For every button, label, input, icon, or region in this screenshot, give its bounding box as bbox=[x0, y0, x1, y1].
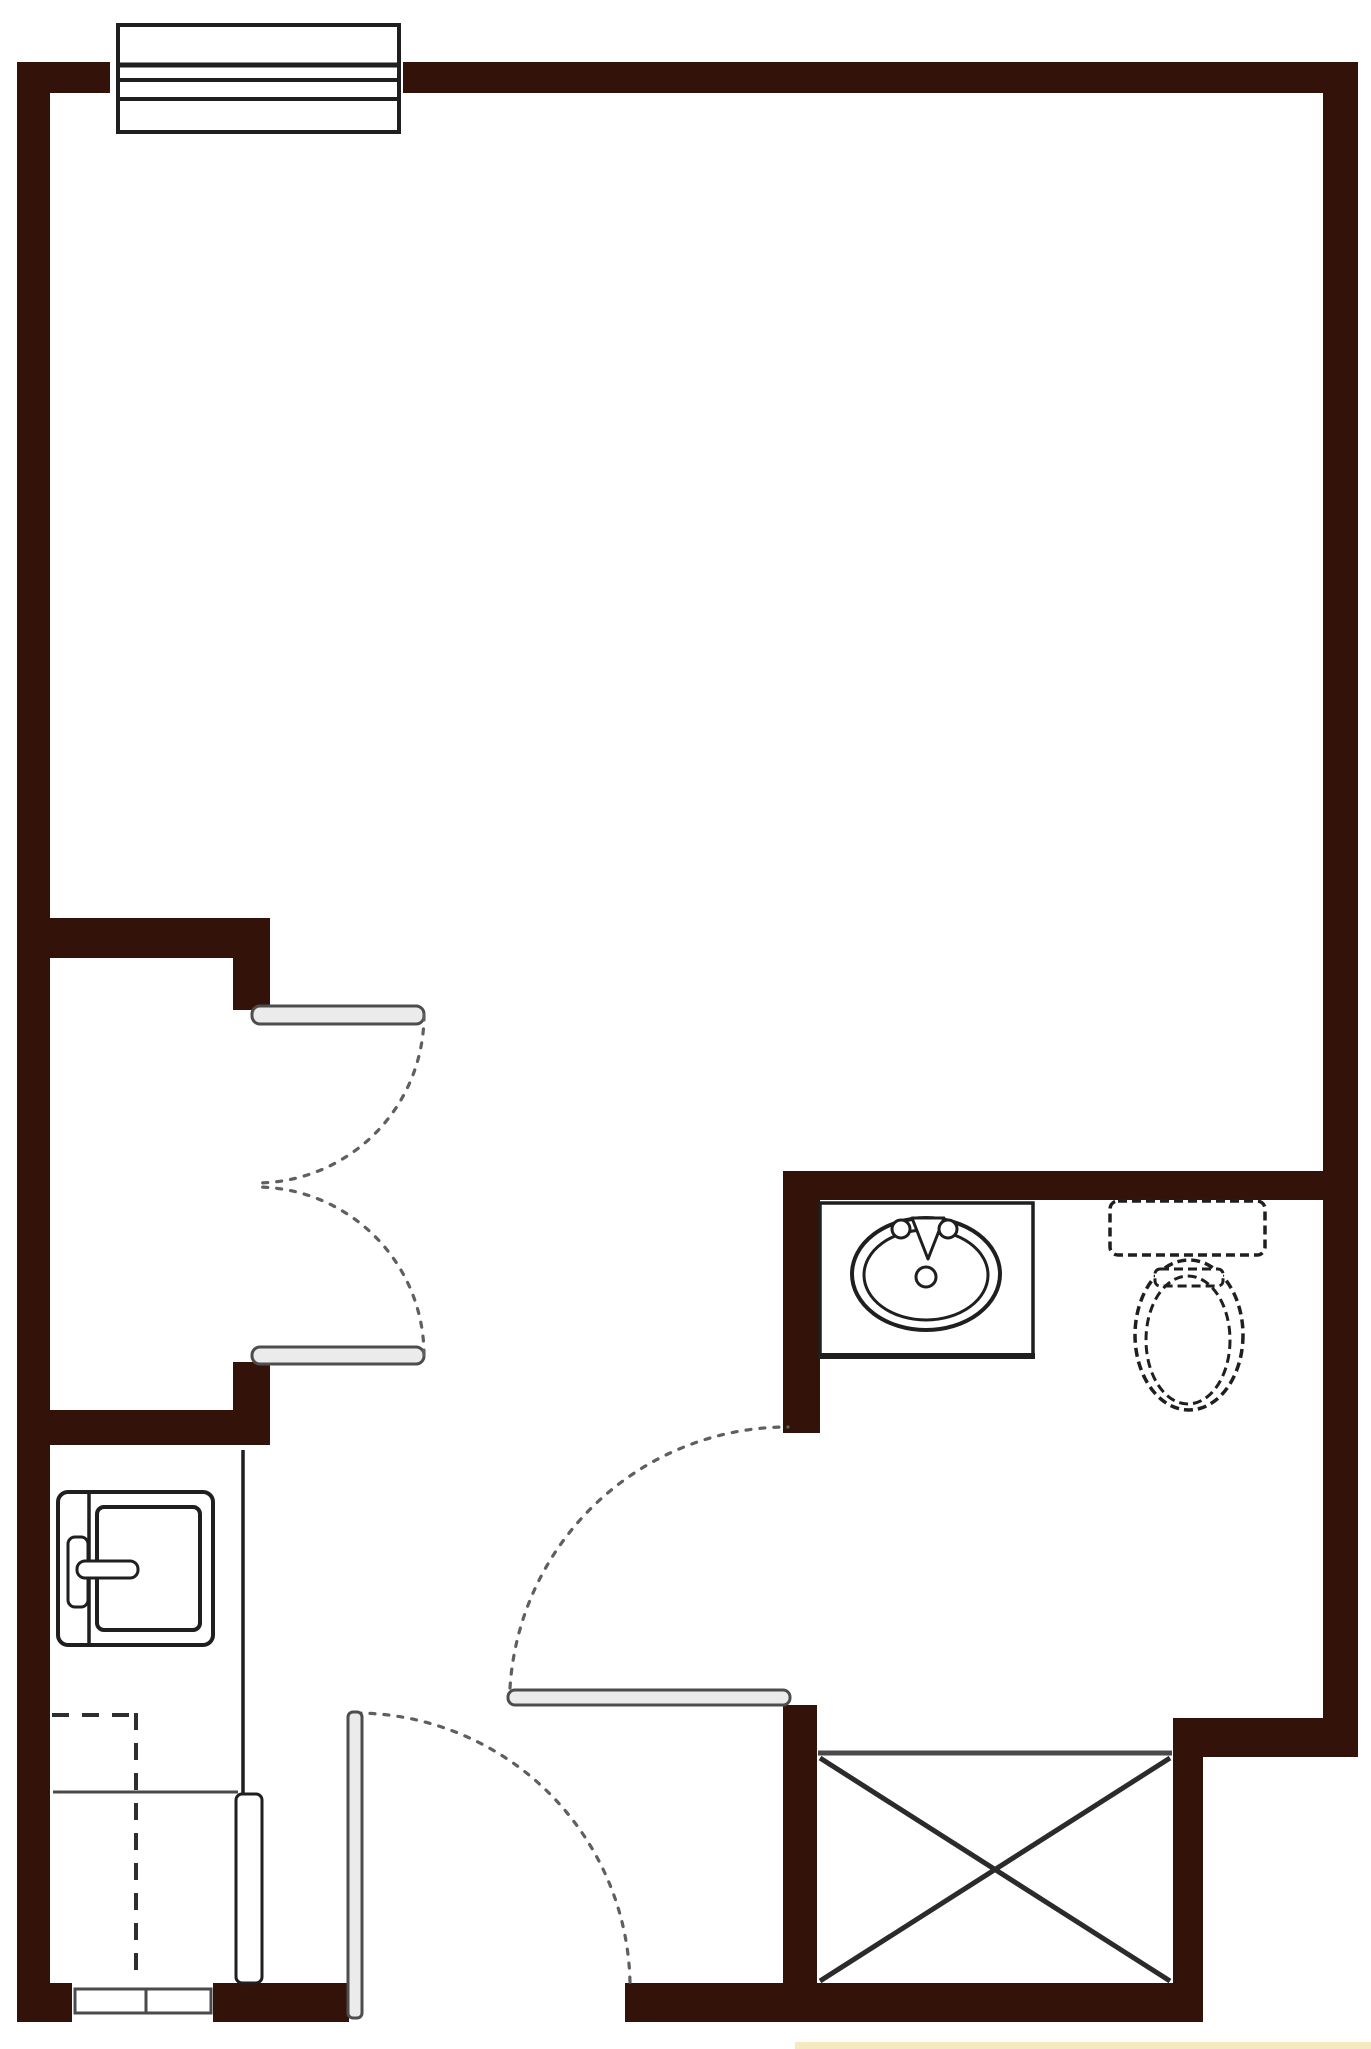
wall-bottom-left bbox=[17, 1983, 72, 2022]
wall-bathroom-lower bbox=[783, 1705, 817, 1983]
floor-plan-drawing bbox=[0, 0, 1371, 2049]
wall-closet-bottom bbox=[50, 1410, 233, 1445]
toilet-tank bbox=[1110, 1201, 1265, 1255]
pass-through-opening bbox=[72, 1983, 213, 2022]
kitchen-sink bbox=[58, 1492, 213, 1645]
wall-right bbox=[1323, 62, 1358, 1757]
kitchen-faucet-spout bbox=[77, 1561, 138, 1578]
wall-closet-bottom-jamb bbox=[233, 1362, 270, 1445]
entry-door-leaf bbox=[348, 1712, 362, 2018]
bottom-accent-strip bbox=[795, 2042, 1371, 2049]
closet-door-lower-leaf bbox=[252, 1347, 424, 1364]
vanity-faucet-handle-right bbox=[939, 1220, 957, 1238]
wall-top-right bbox=[403, 62, 1358, 93]
kitchen-appliance-front bbox=[236, 1794, 262, 1983]
wall-closet-top-jamb bbox=[233, 918, 270, 1010]
vanity-sink-drain bbox=[916, 1267, 936, 1287]
floor-plan-canvas bbox=[0, 0, 1371, 2049]
wall-shower-right bbox=[1173, 1718, 1203, 2022]
closet-door-upper-leaf bbox=[252, 1006, 424, 1024]
wall-bottom-right bbox=[625, 1983, 1203, 2022]
wall-left bbox=[17, 62, 50, 2022]
window bbox=[118, 25, 399, 132]
background bbox=[0, 0, 1371, 2049]
wall-bathroom-top bbox=[783, 1171, 1323, 1200]
wall-bathroom-stub bbox=[783, 1171, 820, 1433]
wall-closet-top bbox=[50, 918, 233, 958]
wall-bottom-mid bbox=[213, 1983, 349, 2022]
bathroom-vanity bbox=[818, 1203, 1035, 1356]
vanity-faucet-handle-left bbox=[892, 1220, 910, 1238]
bathroom-door-leaf bbox=[508, 1690, 790, 1705]
